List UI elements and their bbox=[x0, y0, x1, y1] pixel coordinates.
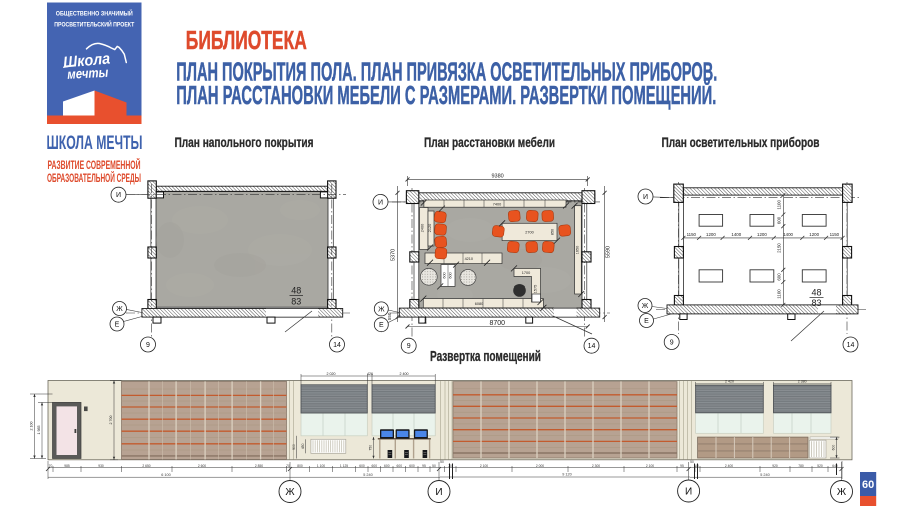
svg-text:1575: 1575 bbox=[534, 285, 538, 293]
svg-text:Ж: Ж bbox=[378, 306, 385, 313]
svg-text:5590: 5590 bbox=[605, 246, 611, 258]
svg-text:9: 9 bbox=[670, 340, 674, 347]
svg-text:4210: 4210 bbox=[465, 257, 473, 261]
svg-text:Е: Е bbox=[115, 322, 120, 329]
svg-text:930: 930 bbox=[98, 464, 104, 468]
svg-text:Ж: Ж bbox=[285, 487, 295, 498]
svg-text:План осветительных приборов: План осветительных приборов bbox=[662, 134, 820, 150]
svg-text:2 600: 2 600 bbox=[198, 464, 206, 468]
svg-text:План расстановки мебели: План расстановки мебели bbox=[424, 134, 555, 150]
svg-text:8700: 8700 bbox=[490, 320, 506, 327]
svg-text:1650: 1650 bbox=[576, 246, 580, 254]
svg-text:БИБЛИОТЕКА: БИБЛИОТЕКА bbox=[186, 25, 307, 55]
svg-text:70: 70 bbox=[286, 464, 290, 468]
svg-text:2 420: 2 420 bbox=[725, 380, 734, 384]
svg-text:ПЛАН РАССТАНОВКИ МЕБЕЛИ С РАЗМ: ПЛАН РАССТАНОВКИ МЕБЕЛИ С РАЗМЕРАМИ. РАЗ… bbox=[176, 80, 716, 110]
svg-text:1400: 1400 bbox=[731, 232, 741, 237]
svg-text:520: 520 bbox=[817, 464, 823, 468]
svg-text:1 100: 1 100 bbox=[317, 464, 325, 468]
svg-text:6 100: 6 100 bbox=[161, 473, 171, 477]
svg-text:ШКОЛА МЕЧТЫ: ШКОЛА МЕЧТЫ bbox=[47, 132, 143, 154]
svg-text:426: 426 bbox=[367, 372, 373, 376]
svg-text:2000: 2000 bbox=[424, 316, 428, 324]
svg-text:9: 9 bbox=[407, 343, 411, 350]
svg-text:Е: Е bbox=[644, 318, 649, 325]
svg-text:550: 550 bbox=[387, 312, 392, 320]
svg-text:5 240: 5 240 bbox=[363, 473, 373, 477]
svg-text:2 100: 2 100 bbox=[646, 464, 654, 468]
svg-text:Развертка помещений: Развертка помещений bbox=[430, 349, 541, 365]
svg-text:600: 600 bbox=[777, 216, 782, 224]
svg-text:ОБРАЗОВАТЕЛЬНОЙ СРЕДЫ: ОБРАЗОВАТЕЛЬНОЙ СРЕДЫ bbox=[47, 172, 141, 185]
svg-text:мечты: мечты bbox=[67, 65, 109, 82]
svg-text:50: 50 bbox=[690, 460, 694, 464]
svg-text:1150: 1150 bbox=[830, 232, 840, 237]
svg-text:14: 14 bbox=[847, 342, 855, 349]
svg-text:600: 600 bbox=[397, 464, 403, 468]
svg-text:14: 14 bbox=[333, 342, 341, 349]
svg-text:985: 985 bbox=[64, 464, 70, 468]
svg-text:1200: 1200 bbox=[706, 232, 716, 237]
svg-text:План напольного покрытия: План напольного покрытия bbox=[175, 134, 314, 150]
svg-text:450: 450 bbox=[301, 443, 305, 449]
svg-text:2 400: 2 400 bbox=[400, 372, 409, 376]
svg-text:95: 95 bbox=[422, 464, 426, 468]
svg-text:Ж: Ж bbox=[116, 306, 123, 313]
svg-text:9380: 9380 bbox=[491, 174, 503, 180]
svg-text:ПРОСВЕТИТЕЛЬСКИЙ ПРОЕКТ: ПРОСВЕТИТЕЛЬСКИЙ ПРОЕКТ bbox=[54, 20, 134, 29]
svg-text:5 240: 5 240 bbox=[760, 473, 770, 477]
svg-text:900: 900 bbox=[292, 444, 296, 450]
svg-text:5370: 5370 bbox=[391, 249, 397, 261]
svg-text:83: 83 bbox=[811, 298, 821, 308]
svg-text:И: И bbox=[643, 194, 648, 201]
svg-text:2 380: 2 380 bbox=[798, 380, 807, 384]
svg-text:1400: 1400 bbox=[783, 232, 793, 237]
svg-text:780: 780 bbox=[798, 464, 804, 468]
svg-text:750: 750 bbox=[369, 445, 373, 451]
svg-text:9: 9 bbox=[146, 342, 150, 349]
svg-text:850: 850 bbox=[551, 229, 555, 235]
svg-text:1150: 1150 bbox=[687, 232, 697, 237]
svg-text:600: 600 bbox=[832, 445, 836, 451]
svg-text:Е: Е bbox=[379, 322, 384, 329]
svg-text:И: И bbox=[116, 192, 121, 199]
svg-text:1100: 1100 bbox=[777, 200, 782, 210]
svg-text:Ж: Ж bbox=[642, 303, 649, 310]
svg-text:2120: 2120 bbox=[428, 224, 432, 232]
svg-text:2 700: 2 700 bbox=[109, 416, 113, 425]
svg-text:920: 920 bbox=[772, 464, 778, 468]
svg-text:ОБЩЕСТВЕННО ЗНАЧИМЫЙ: ОБЩЕСТВЕННО ЗНАЧИМЫЙ bbox=[56, 9, 133, 18]
svg-text:6080: 6080 bbox=[475, 302, 483, 306]
svg-text:83: 83 bbox=[291, 297, 301, 307]
svg-text:7400: 7400 bbox=[493, 203, 501, 207]
svg-text:2700: 2700 bbox=[525, 231, 533, 235]
svg-text:РАЗВИТИЕ СОВРЕМЕННОЙ: РАЗВИТИЕ СОВРЕМЕННОЙ bbox=[48, 159, 141, 172]
svg-text:1700: 1700 bbox=[522, 271, 530, 275]
svg-text:600: 600 bbox=[409, 464, 415, 468]
svg-text:640: 640 bbox=[832, 464, 838, 468]
svg-text:2 400: 2 400 bbox=[725, 464, 733, 468]
svg-text:2 000: 2 000 bbox=[536, 464, 544, 468]
svg-text:48: 48 bbox=[291, 286, 301, 296]
svg-text:48: 48 bbox=[811, 288, 821, 298]
svg-text:50: 50 bbox=[440, 460, 444, 464]
svg-text:800: 800 bbox=[297, 464, 303, 468]
svg-text:1200: 1200 bbox=[757, 232, 767, 237]
svg-text:2 850: 2 850 bbox=[255, 464, 263, 468]
svg-text:9 120: 9 120 bbox=[562, 473, 572, 477]
svg-text:2150: 2150 bbox=[777, 243, 782, 253]
svg-text:600: 600 bbox=[443, 272, 447, 278]
svg-text:2 020: 2 020 bbox=[327, 372, 336, 376]
svg-text:50: 50 bbox=[432, 464, 436, 468]
svg-text:2 100: 2 100 bbox=[30, 422, 34, 431]
svg-text:2 650: 2 650 bbox=[142, 464, 150, 468]
svg-text:95: 95 bbox=[680, 464, 684, 468]
svg-text:И: И bbox=[378, 199, 383, 206]
svg-text:14: 14 bbox=[588, 343, 596, 350]
svg-text:2 100: 2 100 bbox=[480, 464, 488, 468]
svg-text:600: 600 bbox=[384, 464, 390, 468]
svg-text:1100: 1100 bbox=[777, 289, 782, 299]
svg-text:70: 70 bbox=[448, 464, 452, 468]
svg-text:1200: 1200 bbox=[809, 232, 819, 237]
svg-text:1 985: 1 985 bbox=[37, 426, 41, 435]
svg-text:600: 600 bbox=[777, 273, 782, 281]
svg-text:600: 600 bbox=[449, 272, 453, 278]
svg-text:И: И bbox=[435, 487, 442, 498]
svg-text:2400: 2400 bbox=[421, 224, 425, 232]
svg-text:600: 600 bbox=[372, 464, 378, 468]
svg-text:60: 60 bbox=[862, 479, 874, 491]
svg-text:600: 600 bbox=[359, 464, 365, 468]
svg-text:Ж: Ж bbox=[837, 487, 847, 498]
svg-text:И: И bbox=[685, 487, 692, 498]
svg-text:1 125: 1 125 bbox=[340, 464, 348, 468]
svg-text:2 300: 2 300 bbox=[592, 464, 600, 468]
